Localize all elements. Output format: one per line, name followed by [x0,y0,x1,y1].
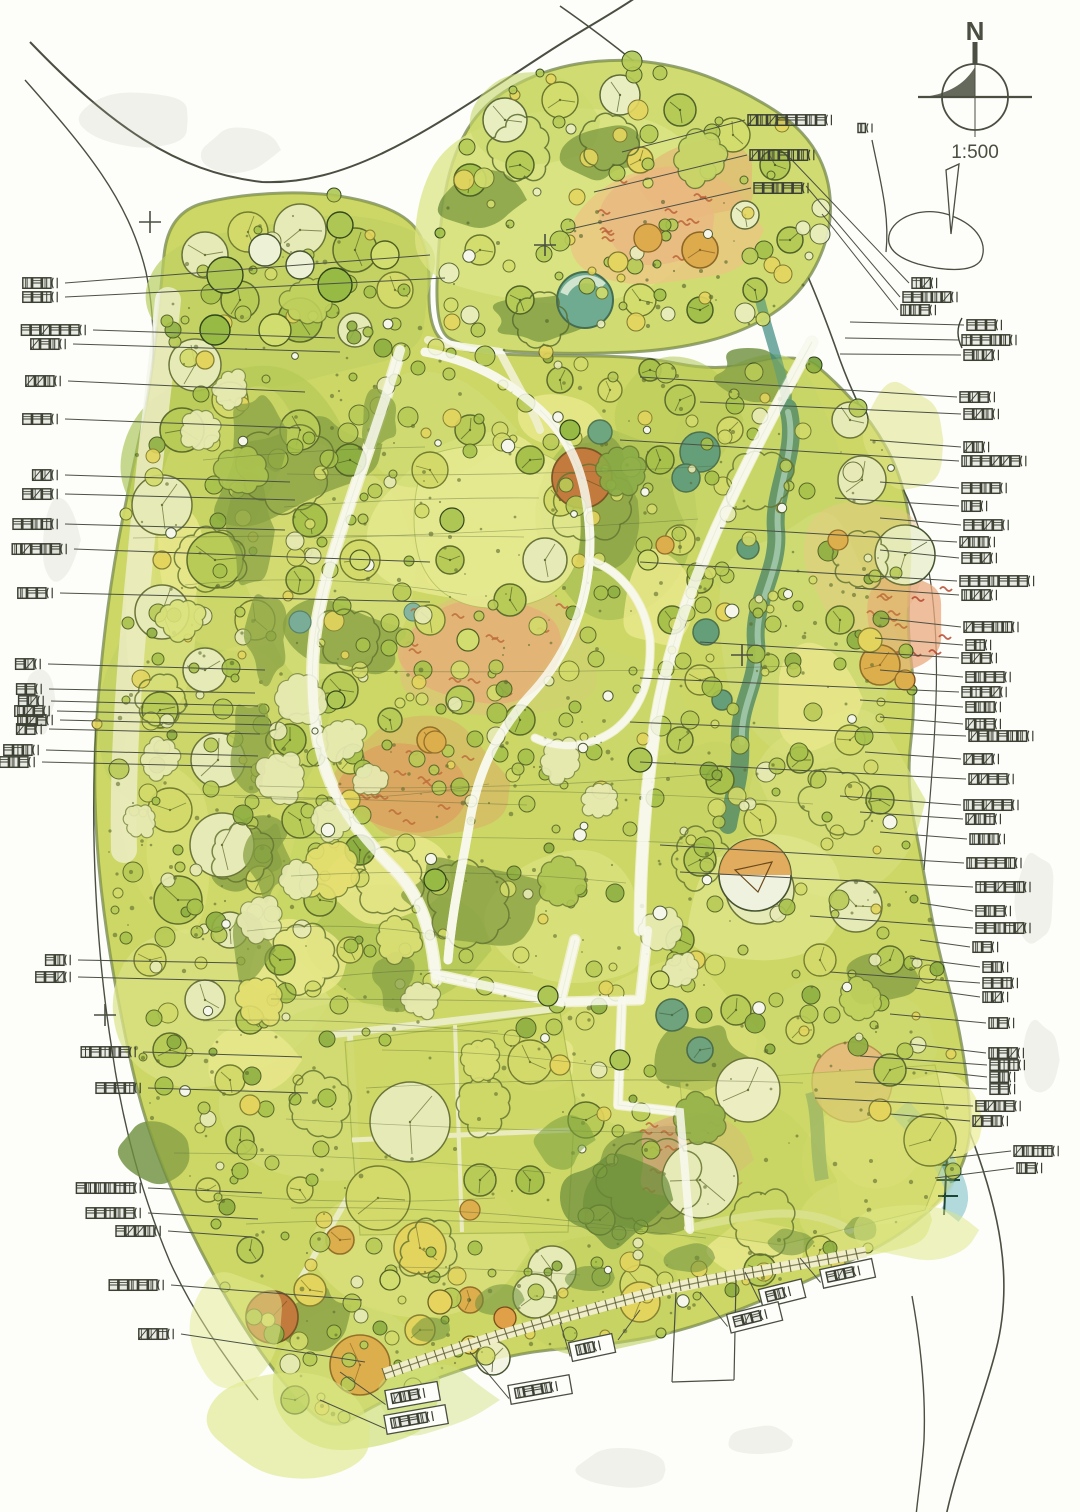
svg-text:1:500: 1:500 [951,142,999,163]
svg-text:N: N [966,16,985,46]
